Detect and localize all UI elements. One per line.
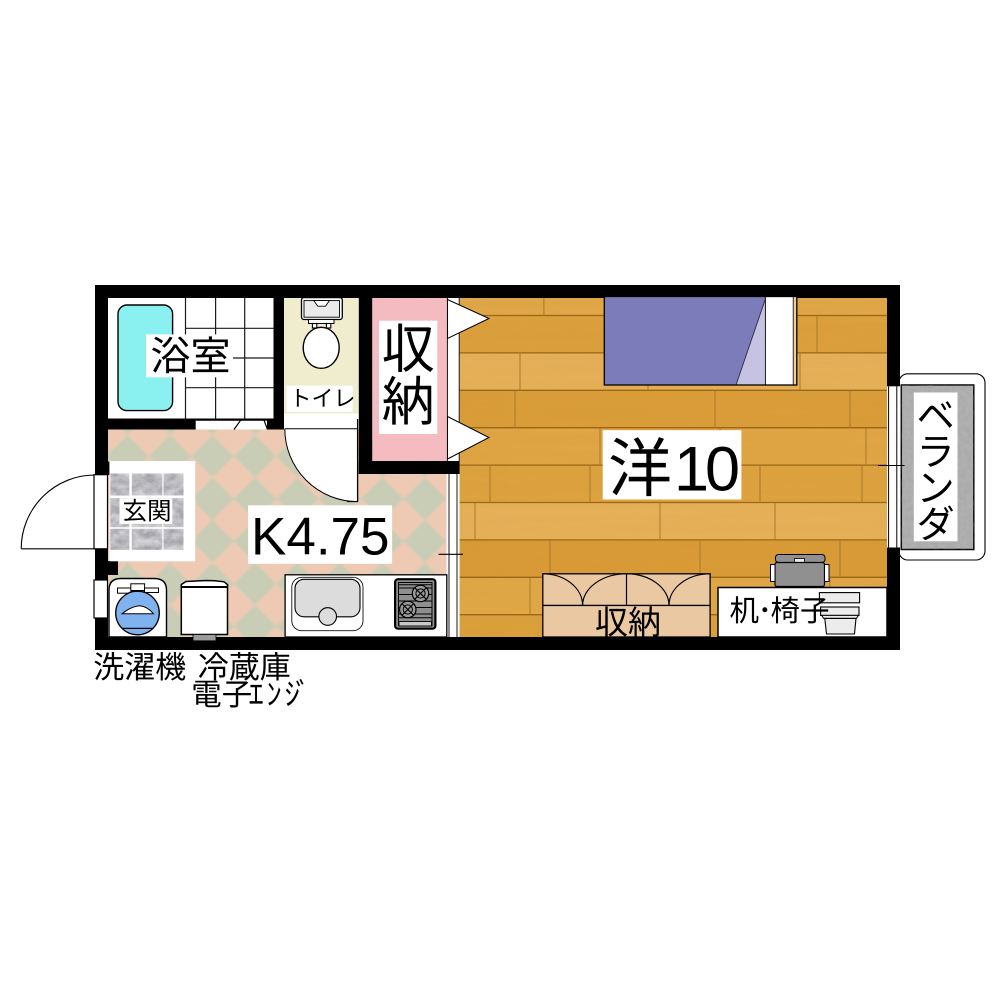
svg-text:K4.75: K4.75 <box>251 508 390 567</box>
svg-text:10: 10 <box>674 435 740 505</box>
